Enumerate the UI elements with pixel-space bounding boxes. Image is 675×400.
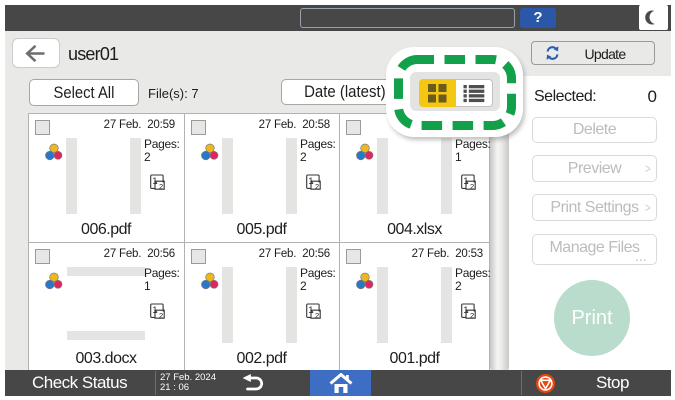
svg-text:1: 1 <box>463 176 468 186</box>
svg-text:2: 2 <box>315 182 319 190</box>
svg-text:2: 2 <box>470 311 474 319</box>
svg-text:2: 2 <box>159 182 163 190</box>
svg-text:1: 1 <box>463 305 468 315</box>
svg-text:1: 1 <box>152 176 157 186</box>
svg-text:2: 2 <box>470 182 474 190</box>
svg-text:1: 1 <box>152 305 157 315</box>
svg-text:2: 2 <box>315 311 319 319</box>
svg-text:2: 2 <box>159 311 163 319</box>
svg-text:1: 1 <box>308 305 313 315</box>
svg-text:1: 1 <box>308 176 313 186</box>
